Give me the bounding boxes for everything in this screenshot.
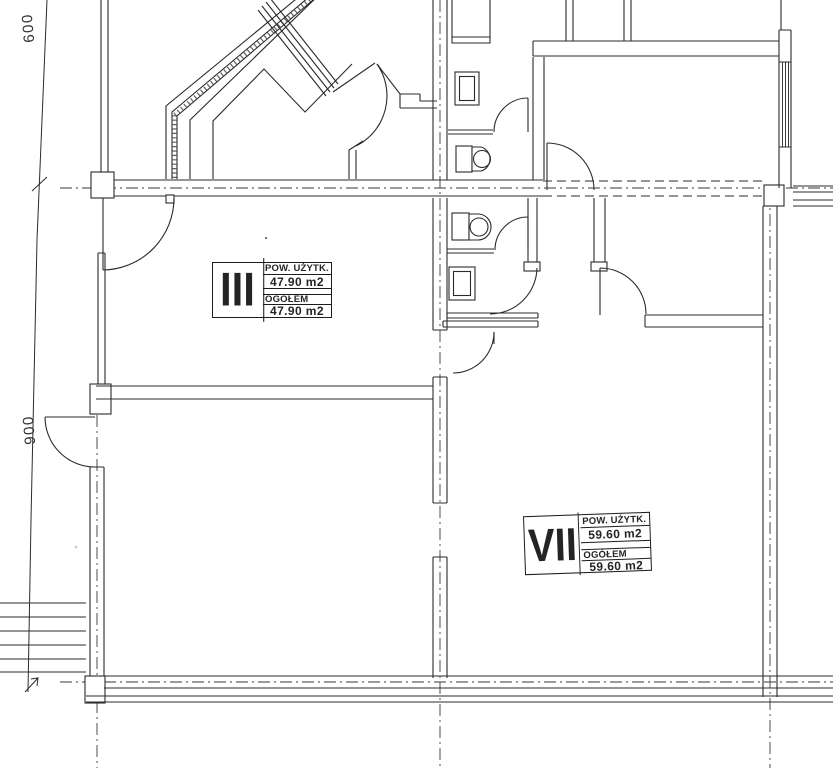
dimension-label-900: 900: [19, 407, 39, 452]
door-arc: [453, 332, 494, 373]
total-label: OGÓŁEM: [263, 295, 331, 305]
top-right-room: [533, 0, 791, 190]
stairs-icon: [0, 603, 86, 672]
sink-icon: [449, 267, 475, 300]
left-wall: [85, 0, 111, 703]
dimension-line: [25, 0, 47, 692]
total-value: 47.90 m2: [263, 305, 331, 317]
room-iii-bottom-wall: [96, 386, 433, 399]
sink-icon: [455, 72, 479, 105]
room-iii-area-table: POW. UŻYTK. 47.90 m2 OGÓŁEM 47.90 m2: [263, 263, 331, 317]
room-iii-number: III: [212, 258, 265, 322]
toilet-icon: [456, 146, 491, 172]
door-arc: [600, 268, 646, 314]
wall-hatch: [175, 0, 311, 115]
lower-left-door: [45, 417, 95, 467]
upper-room-outline: [213, 64, 352, 179]
area-label: POW. UŻYTK.: [263, 263, 331, 275]
diagonal-band: [258, 0, 338, 96]
door-arc: [547, 143, 594, 190]
door-arc: [490, 268, 537, 314]
room-label-vii: VII POW. UŻYTK. 59.60 m2 OGÓŁEM 59.60 m2: [523, 512, 652, 575]
door-arc: [495, 217, 528, 250]
area-value: 47.90 m2: [263, 275, 331, 289]
room-iii-door: [103, 195, 174, 270]
total-value: 59.60 m2: [582, 559, 651, 572]
door-arc: [356, 64, 387, 146]
door-arc: [494, 98, 528, 132]
wall-stub: [400, 94, 437, 108]
bathroom-upper: [448, 0, 544, 180]
door-arc: [45, 417, 95, 467]
floor-plan-drawing: [0, 0, 833, 768]
room-vii-number: VII: [525, 512, 580, 577]
floor-plan: III POW. UŻYTK. 47.90 m2 OGÓŁEM 47.90 m2…: [0, 0, 833, 768]
corridor-wall: [91, 172, 833, 206]
bottom-wall: [86, 676, 833, 702]
window-icon: [779, 62, 791, 147]
bathroom-lower: [447, 198, 540, 314]
dimension-label-600: 600: [18, 5, 38, 50]
toilet-icon: [452, 213, 491, 240]
room-vii-area-table: POW. UŻYTK. 59.60 m2 OGÓŁEM 59.60 m2: [580, 513, 651, 572]
room-label-iii: III POW. UŻYTK. 47.90 m2 OGÓŁEM 47.90 m2: [212, 262, 332, 318]
door-arc: [103, 198, 174, 270]
diagonal-walls: [166, 0, 437, 179]
duct-shaft: [452, 0, 490, 43]
dimension-arrow: [25, 678, 38, 692]
